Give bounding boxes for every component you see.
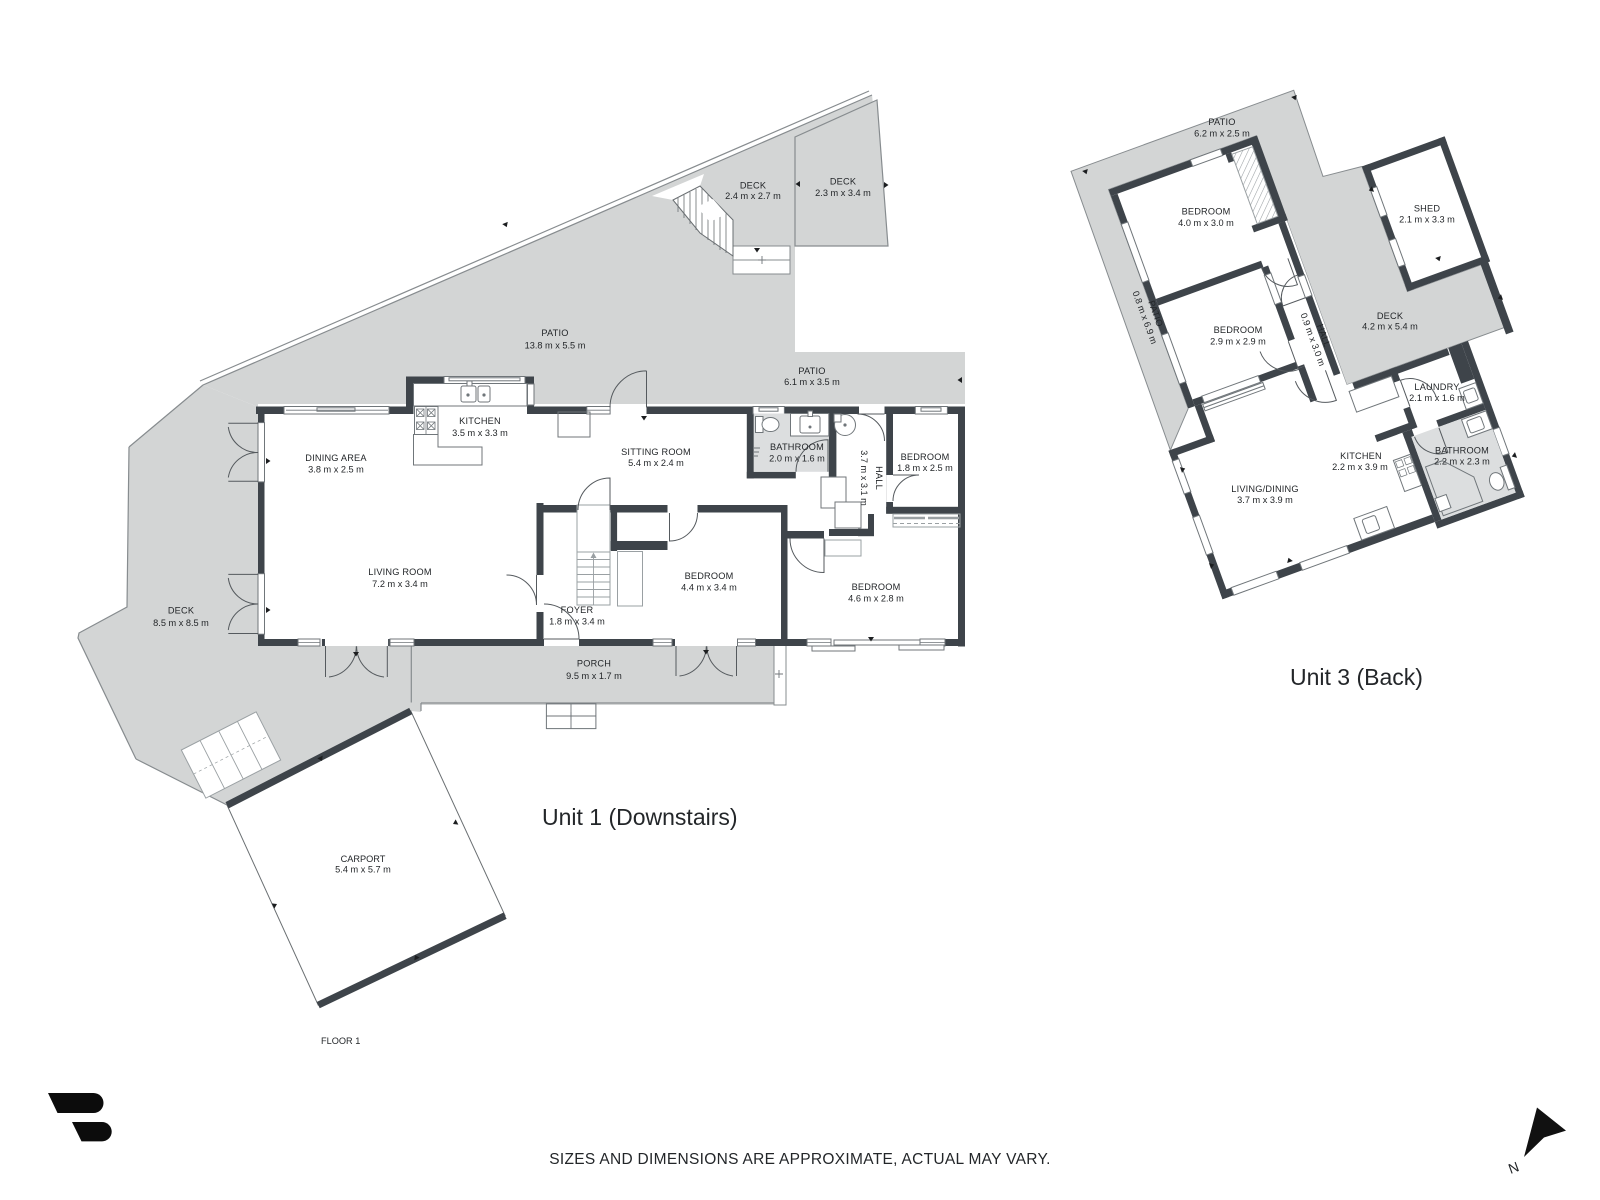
svg-text:3.8 m x 2.5 m: 3.8 m x 2.5 m: [308, 465, 364, 475]
svg-text:LIVING ROOM: LIVING ROOM: [368, 567, 431, 577]
svg-text:1.8 m x 2.5 m: 1.8 m x 2.5 m: [897, 463, 953, 473]
svg-text:CARPORT: CARPORT: [341, 854, 386, 864]
svg-text:SITTING ROOM: SITTING ROOM: [621, 447, 691, 457]
svg-text:4.0 m x 3.0 m: 4.0 m x 3.0 m: [1178, 218, 1234, 228]
svg-text:HALL: HALL: [874, 466, 884, 490]
svg-text:3.5 m x 3.3 m: 3.5 m x 3.3 m: [452, 428, 508, 438]
svg-text:6.1 m x 3.5 m: 6.1 m x 3.5 m: [784, 377, 840, 387]
svg-text:SIZES AND DIMENSIONS ARE APPRO: SIZES AND DIMENSIONS ARE APPROXIMATE, AC…: [549, 1151, 1050, 1168]
svg-text:DINING AREA: DINING AREA: [305, 453, 367, 463]
svg-text:2.2 m x 2.3 m: 2.2 m x 2.3 m: [1434, 457, 1490, 467]
svg-text:2.9 m x 2.9 m: 2.9 m x 2.9 m: [1210, 337, 1266, 347]
svg-text:LAUNDRY: LAUNDRY: [1414, 382, 1459, 392]
svg-text:BEDROOM: BEDROOM: [901, 452, 950, 462]
svg-text:KITCHEN: KITCHEN: [1340, 451, 1382, 461]
svg-text:5.4 m x 5.7 m: 5.4 m x 5.7 m: [335, 865, 391, 875]
svg-text:DECK: DECK: [1377, 311, 1404, 321]
svg-text:2.1 m x 3.3 m: 2.1 m x 3.3 m: [1399, 215, 1455, 225]
svg-text:SHED: SHED: [1414, 204, 1440, 214]
svg-text:2.2 m x 3.9 m: 2.2 m x 3.9 m: [1332, 462, 1388, 472]
svg-text:PATIO: PATIO: [1208, 117, 1235, 127]
svg-text:8.5 m x 8.5 m: 8.5 m x 8.5 m: [153, 618, 209, 628]
svg-text:BEDROOM: BEDROOM: [1214, 325, 1263, 335]
svg-text:4.4 m x 3.4 m: 4.4 m x 3.4 m: [681, 583, 737, 593]
svg-text:13.8 m x 5.5 m: 13.8 m x 5.5 m: [525, 341, 586, 351]
svg-text:3.7 m x 3.9 m: 3.7 m x 3.9 m: [1237, 495, 1293, 505]
svg-text:4.2 m x 5.4 m: 4.2 m x 5.4 m: [1362, 322, 1418, 332]
svg-text:Unit 1 (Downstairs): Unit 1 (Downstairs): [542, 804, 738, 830]
svg-text:LIVING/DINING: LIVING/DINING: [1231, 484, 1298, 494]
svg-text:BEDROOM: BEDROOM: [1182, 207, 1231, 217]
svg-text:7.2 m x 3.4 m: 7.2 m x 3.4 m: [372, 579, 428, 589]
svg-text:9.5 m x 1.7 m: 9.5 m x 1.7 m: [566, 671, 622, 681]
svg-text:2.0 m x 1.6 m: 2.0 m x 1.6 m: [769, 454, 825, 464]
svg-text:BATHROOM: BATHROOM: [1435, 446, 1489, 456]
svg-text:BEDROOM: BEDROOM: [852, 582, 901, 592]
svg-text:1.8 m x 3.4 m: 1.8 m x 3.4 m: [549, 617, 605, 627]
svg-text:Unit 3 (Back): Unit 3 (Back): [1290, 664, 1423, 690]
svg-text:DECK: DECK: [740, 181, 767, 191]
svg-text:KITCHEN: KITCHEN: [459, 416, 501, 426]
svg-text:2.4 m x 2.7 m: 2.4 m x 2.7 m: [725, 191, 781, 201]
svg-text:4.6 m x 2.8 m: 4.6 m x 2.8 m: [848, 594, 904, 604]
svg-text:BEDROOM: BEDROOM: [685, 571, 734, 581]
svg-text:FOYER: FOYER: [561, 605, 594, 615]
svg-text:PATIO: PATIO: [541, 328, 568, 338]
svg-text:2.1 m x 1.6 m: 2.1 m x 1.6 m: [1409, 393, 1465, 403]
svg-text:DECK: DECK: [830, 177, 857, 187]
svg-text:2.3 m x 3.4 m: 2.3 m x 3.4 m: [815, 188, 871, 198]
svg-text:BATHROOM: BATHROOM: [770, 442, 824, 452]
svg-text:3.7 m x 3.1 m: 3.7 m x 3.1 m: [859, 450, 869, 506]
svg-text:DECK: DECK: [168, 606, 195, 616]
svg-text:FLOOR 1: FLOOR 1: [321, 1036, 360, 1046]
svg-text:PATIO: PATIO: [798, 366, 825, 376]
svg-text:PORCH: PORCH: [577, 659, 611, 669]
svg-text:5.4 m x 2.4 m: 5.4 m x 2.4 m: [628, 458, 684, 468]
svg-text:6.2 m x 2.5 m: 6.2 m x 2.5 m: [1194, 129, 1250, 139]
